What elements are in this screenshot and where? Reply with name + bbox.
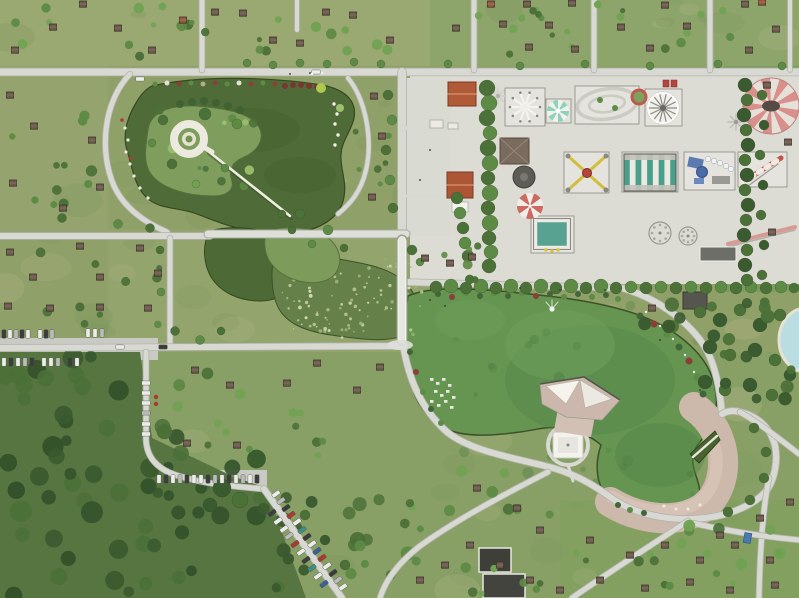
trees-ne-parcel (713, 313, 727, 327)
scatter-trees-ne-parcel (720, 350, 729, 359)
stepping-stones (430, 378, 434, 381)
trees-col-east (755, 150, 765, 160)
scatter-trees-pond2-ne-band (707, 330, 720, 343)
scatter-trees-west-mid (81, 320, 89, 328)
lily-pads (414, 286, 417, 289)
scatter-trees-northwest (31, 196, 38, 203)
scatter-trees-top-left (256, 46, 264, 54)
pond2-north-garden (589, 294, 595, 300)
plaza-motif-east (691, 230, 694, 233)
pendulum-hub (583, 169, 592, 178)
trees-col-east (758, 180, 768, 190)
scatter-trees-mid-south (202, 368, 214, 380)
parked-cars (142, 432, 151, 436)
scatter-trees-top-left (341, 26, 349, 34)
island-ring-garden (186, 136, 193, 143)
scatter-trees-top-right (620, 8, 625, 13)
gate-stall-b (448, 123, 458, 129)
trees-col-east (740, 214, 752, 226)
pond2-north-garden (561, 294, 567, 300)
parked-cars (142, 381, 151, 385)
teal-tent-cap-top (624, 154, 676, 160)
blue-ride-domes (705, 156, 711, 162)
pond-2-algae (474, 392, 478, 396)
scatter-trees-west-mid (97, 311, 103, 317)
pool-water (536, 221, 568, 247)
west-shore-planters (123, 126, 126, 129)
scatter-trees-east-of-entrance (463, 260, 473, 270)
parked-cars (75, 358, 79, 367)
forest-canopy-b (139, 577, 152, 590)
big-top-vent (762, 101, 780, 112)
scatter-trees-top-left (159, 3, 167, 11)
parked-cars (86, 329, 90, 338)
trees-row-park-south (640, 282, 652, 294)
forest-canopy-c (298, 565, 309, 576)
red-stall-a (663, 80, 669, 87)
star-flyer-ride (522, 104, 529, 111)
scatter-trees-bottom-right (666, 582, 674, 590)
parked-cars (164, 475, 168, 484)
light-green-tree (336, 104, 344, 112)
scatter-trees-northwest (79, 111, 89, 121)
trees-col-east (739, 184, 751, 196)
scatter-trees-top-right (509, 24, 518, 33)
coaster-garden-b (612, 105, 618, 111)
forest-canopy-a (37, 370, 54, 387)
plaza-motif-west (649, 222, 671, 244)
scatter-trees-top-left (311, 22, 321, 32)
trees-peninsula (340, 244, 348, 252)
grass-mottle (679, 3, 699, 15)
pool-loungers (544, 248, 548, 252)
north-shore-flowerbeds (201, 82, 206, 87)
stepping-stones (446, 390, 450, 393)
lily-pads (340, 328, 343, 331)
scatter-trees-northwest (52, 185, 62, 195)
scatter-trees-mid-south (297, 409, 304, 416)
scatter-trees-west-mid (91, 260, 99, 268)
trees-row-park-south (670, 282, 682, 294)
lily-pads (409, 328, 412, 331)
blue-ride-domes (717, 160, 723, 166)
stepping-stones (444, 400, 448, 403)
lily-pads (288, 284, 291, 287)
island-ring-garden (186, 136, 193, 143)
north-shore-flowerbeds (237, 81, 242, 86)
scatter-trees-ne-parcel (778, 392, 791, 405)
scatter-trees-south-center (533, 586, 540, 593)
pool-loungers (550, 249, 554, 253)
trees-row-park-south (700, 282, 712, 294)
lily-pads (301, 323, 303, 325)
trees-row-top-road (269, 61, 277, 69)
west-shore-red-flowers (120, 118, 124, 122)
trees-row-park-west (481, 171, 495, 185)
plaza-motif-west (659, 232, 662, 235)
scatter-trees-top-right (475, 12, 483, 20)
trees-col-east (740, 124, 752, 136)
trees-lot-south (340, 560, 350, 570)
trees-island (221, 164, 229, 172)
west-shore-planters (126, 138, 129, 141)
trees-row-park-west (484, 245, 498, 259)
pond-2-light-a (505, 310, 615, 380)
island-north-hedge (236, 106, 244, 114)
scatter-trees-south-center (444, 505, 455, 516)
scatter-trees-top-right (726, 33, 734, 41)
star-flyer-ride (539, 106, 542, 109)
lily-pads (356, 293, 358, 295)
parked-cars (142, 401, 151, 405)
island-north-hedge (200, 97, 208, 105)
scatter-trees-south-center (406, 499, 414, 507)
picnic-huts (759, 0, 766, 5)
parked-cars (23, 358, 27, 367)
parked-cars (50, 330, 54, 339)
trees-island (192, 180, 200, 188)
scatter-trees-teardrop (356, 167, 361, 172)
grove-south (400, 519, 410, 529)
lily-pads (326, 319, 328, 321)
lily-pads (352, 287, 356, 291)
scatter-trees-pond2-ne-band (759, 302, 771, 314)
parked-cars (185, 475, 189, 484)
pond-2-algae (580, 466, 586, 472)
pond2-west-garden (407, 349, 413, 355)
trees-road-west-mid (58, 214, 67, 223)
ne-pavilion (683, 292, 707, 309)
teal-tent-cap-bottom (624, 185, 676, 191)
trees-lot-south (300, 510, 310, 520)
lily-pads (298, 300, 301, 303)
plaza-motif-east (691, 239, 694, 242)
trees-island (148, 139, 156, 147)
trees-plaza-outer (745, 495, 755, 505)
trees-island (232, 119, 242, 129)
grove-south (343, 507, 356, 520)
star-flyer-ride (519, 91, 522, 94)
blue-ride-wheel (697, 167, 708, 178)
lily-pads (367, 266, 371, 270)
pond2-ne-benches (645, 311, 647, 313)
scatter-trees-top-left (134, 3, 145, 14)
parked-cars (26, 330, 30, 339)
pond-2-algae (626, 301, 636, 311)
scatter-trees-south-center (478, 591, 484, 597)
trees-col-east (757, 90, 767, 100)
chartreuse-tree (316, 83, 326, 93)
pond2-north-garden (575, 291, 581, 297)
east-shore-boats (333, 143, 336, 146)
trees-peninsula (308, 240, 316, 248)
north-shore-flowerbeds (213, 81, 218, 86)
island-shrubs (156, 107, 164, 115)
parked-cars (171, 475, 175, 484)
scatter-trees-top-left (135, 52, 144, 61)
parked-cars (93, 329, 97, 338)
lily-pads (419, 305, 421, 307)
scatter-trees-bottom-right (573, 550, 580, 557)
west-shore-planters (128, 162, 131, 165)
grass-mottle (569, 502, 584, 508)
parked-cars (142, 391, 151, 395)
trees-row-park-south (534, 279, 548, 293)
plaza-motif-east (693, 235, 696, 238)
lily-pads (319, 329, 323, 333)
north-shore-red-hedge (298, 82, 304, 88)
scatter-trees-top-left (11, 18, 20, 27)
aerial-photo-canvas (0, 0, 799, 598)
trees-row-top-road (581, 60, 589, 68)
scatter-trees-ne-parcel (720, 378, 731, 389)
ne-pavilion (683, 292, 707, 309)
trees-row-park-south (430, 281, 442, 293)
pond2-south-benches (699, 504, 702, 507)
lily-pads (347, 324, 350, 327)
scatter-trees-south-center (460, 562, 470, 572)
plaza-motif-west (664, 226, 667, 229)
island-shrubs (222, 120, 227, 125)
trees-plaza-outer (723, 507, 733, 517)
trees-bridge-east (156, 246, 164, 254)
east-shore-boats (332, 102, 335, 105)
entrance-pavement (406, 78, 450, 236)
scatter-trees-pond2-ne-band (665, 297, 679, 311)
scatter-trees-south-center (486, 486, 498, 498)
pond2-ne-garden (651, 321, 658, 328)
scatter-trees-south-center (537, 580, 544, 587)
lily-pads (305, 316, 308, 319)
forest-canopy-a (64, 468, 76, 480)
trees-col-east (759, 120, 769, 130)
stepping-stones (440, 394, 444, 397)
lily-pads (286, 297, 288, 299)
scatter-trees-west-mid (154, 321, 162, 329)
plaza-motif-west (667, 232, 670, 235)
forest-canopy-b (171, 506, 185, 520)
lily-pads (315, 313, 318, 316)
blue-vehicle (743, 532, 752, 543)
trees-bridge-east (157, 288, 165, 296)
parked-cars (142, 422, 151, 426)
scatter-trees-east-of-entrance (441, 252, 447, 258)
stepping-stones (430, 400, 434, 403)
north-shore-flowerbeds (249, 82, 254, 87)
scatter-trees-west-mid (121, 277, 130, 286)
scatter-trees-top-left (342, 46, 352, 56)
scatter-trees-pond2-ne-band (707, 301, 717, 311)
scatter-trees-south-center (456, 465, 468, 477)
island-north-hedge (176, 100, 184, 108)
lily-pads (363, 286, 366, 289)
blue-ride-domes (723, 163, 729, 169)
scatter-trees-teardrop (378, 181, 383, 186)
scatter-trees-top-left (189, 20, 195, 26)
trees-bridge-east (407, 245, 417, 255)
park-service-building (700, 247, 736, 261)
lily-pads (345, 328, 348, 331)
trees-col-east (741, 244, 753, 256)
lily-pads (367, 315, 369, 317)
pond2-west-garden (428, 406, 434, 412)
star-flyer-ride (512, 115, 515, 118)
east-shore-boats (335, 112, 338, 115)
scatter-trees-pond2-ne-band (742, 298, 752, 308)
lily-pads (316, 311, 317, 312)
trees-col-east (737, 108, 751, 122)
parked-cars (192, 475, 196, 484)
van-red-cargo (154, 395, 158, 399)
pond-2-light-a (505, 310, 615, 380)
north-shore-red-hedge (282, 83, 288, 89)
scatter-trees-top-right (676, 38, 686, 48)
scatter-trees-northwest (9, 133, 15, 139)
island-shrubs (249, 119, 258, 128)
west-shore-red-flowers (129, 156, 133, 160)
scatter-trees-west-mid (75, 302, 84, 311)
striped-umbrella (517, 193, 543, 219)
pedestrians (309, 72, 311, 74)
trees-row-park-south (625, 281, 637, 293)
trees-entrance-col (451, 192, 463, 204)
lily-pads (293, 301, 294, 302)
trees-row-park-south (685, 281, 697, 293)
scatter-trees-ne-parcel (787, 365, 796, 374)
pond2-south-benches (687, 508, 690, 511)
island-shrubs (233, 163, 238, 168)
pond2-ne-garden (676, 344, 683, 351)
forest-canopy-a (8, 482, 25, 499)
scatter-trees-top-left (372, 39, 383, 50)
forest-canopy-a (0, 454, 17, 472)
forest-canopy-a (15, 527, 29, 541)
grass-top-right (430, 0, 799, 66)
parked-cars (2, 358, 6, 367)
trees-lot-south (203, 498, 217, 512)
small-spinner-ride (496, 94, 500, 98)
trees-row-top-road (243, 59, 251, 67)
pedestrians (289, 73, 291, 75)
grass-mottle (175, 285, 211, 310)
pedestrians (419, 179, 421, 181)
pedestrians (659, 339, 661, 341)
lily-pads (325, 317, 327, 319)
north-shore-flowerbeds (225, 82, 230, 87)
trees-road-west-mid (114, 220, 123, 229)
carousel (547, 100, 569, 122)
north-shore-flowerbeds (273, 82, 278, 87)
forest-canopy-a (110, 483, 128, 501)
scatter-trees-east-of-entrance (466, 246, 472, 252)
stepping-stones (452, 396, 456, 399)
pedestrians (429, 149, 431, 151)
plaza-motif-west (653, 226, 656, 229)
scatter-trees-top-right (661, 44, 670, 53)
lily-pads (340, 273, 342, 275)
forest-canopy-c (306, 496, 318, 508)
scatter-trees-top-left (326, 29, 337, 40)
parked-cars (14, 330, 18, 339)
trees-lot-south (320, 535, 330, 545)
west-shore-planters (146, 196, 149, 199)
scatter-trees-bottom-right (730, 580, 736, 586)
forest-canopy-c (253, 492, 265, 504)
stepping-stones (434, 390, 438, 393)
parked-cars (20, 330, 24, 339)
pond2-north-garden (603, 292, 609, 298)
lily-pads (353, 331, 355, 333)
parked-cars (248, 475, 252, 484)
star-flyer-ride (528, 120, 531, 123)
pond-2-algae (686, 471, 693, 478)
scatter-trees-top-right (529, 7, 537, 15)
scatter-trees-ne-parcel (752, 394, 762, 404)
trees-row-top-road (350, 58, 358, 66)
star-flyer-ride (512, 97, 515, 100)
island-shrubs (242, 119, 248, 125)
scatter-trees-east-of-entrance (465, 275, 475, 285)
scatter-trees-teardrop (353, 129, 359, 135)
pond2-south-bushes (641, 510, 647, 516)
pond2-north-garden (477, 293, 483, 299)
coaster-garden-b (612, 105, 618, 111)
round-pavilion-top (520, 173, 528, 181)
north-shore-red-hedge (290, 82, 296, 88)
lily-pads (297, 319, 299, 321)
forest-canopy-c (283, 553, 294, 564)
trees-island (158, 115, 168, 125)
pond-2-algae (605, 447, 611, 453)
star-flyer-ride (536, 97, 539, 100)
pedestrians (429, 299, 431, 301)
pond2-west-garden (413, 369, 419, 375)
trees-col-east (741, 274, 753, 286)
trees-col-east (741, 94, 753, 106)
pedestrians (559, 289, 561, 291)
trees-peninsula (323, 225, 333, 235)
forest-canopy-a (18, 392, 31, 405)
scatter-trees-bottom-right (683, 520, 695, 532)
parked-cars (199, 475, 203, 484)
trees-row-park-south (655, 281, 667, 293)
forest-canopy-a (48, 448, 64, 464)
plaza-motif-west (659, 224, 662, 227)
forest-canopy-b (164, 490, 175, 501)
trees-row-top-road (296, 59, 304, 67)
west-shore-planters (132, 174, 135, 177)
parked-cars (220, 475, 224, 484)
north-shore-flowerbeds (153, 82, 158, 87)
red-ring-ride (632, 90, 646, 104)
gate-stall-b (448, 123, 458, 129)
grove-south (373, 494, 384, 505)
lily-pads (328, 323, 330, 325)
trees-row-park-south (580, 282, 592, 294)
trees-entrance-col (457, 222, 469, 234)
scatter-trees-top-left (18, 39, 28, 49)
lily-pads (354, 305, 358, 309)
trees-row-park-west (480, 140, 496, 156)
lily-pads (350, 298, 353, 301)
trees-row-top-road (646, 62, 654, 70)
scatter-trees-south-center (503, 504, 514, 515)
forest-canopy-a (85, 465, 103, 483)
pond-2-algae (573, 342, 581, 350)
red-stall-b (671, 80, 677, 87)
scatter-trees-south-center (417, 525, 424, 532)
pond2-south-bushes (615, 502, 621, 508)
